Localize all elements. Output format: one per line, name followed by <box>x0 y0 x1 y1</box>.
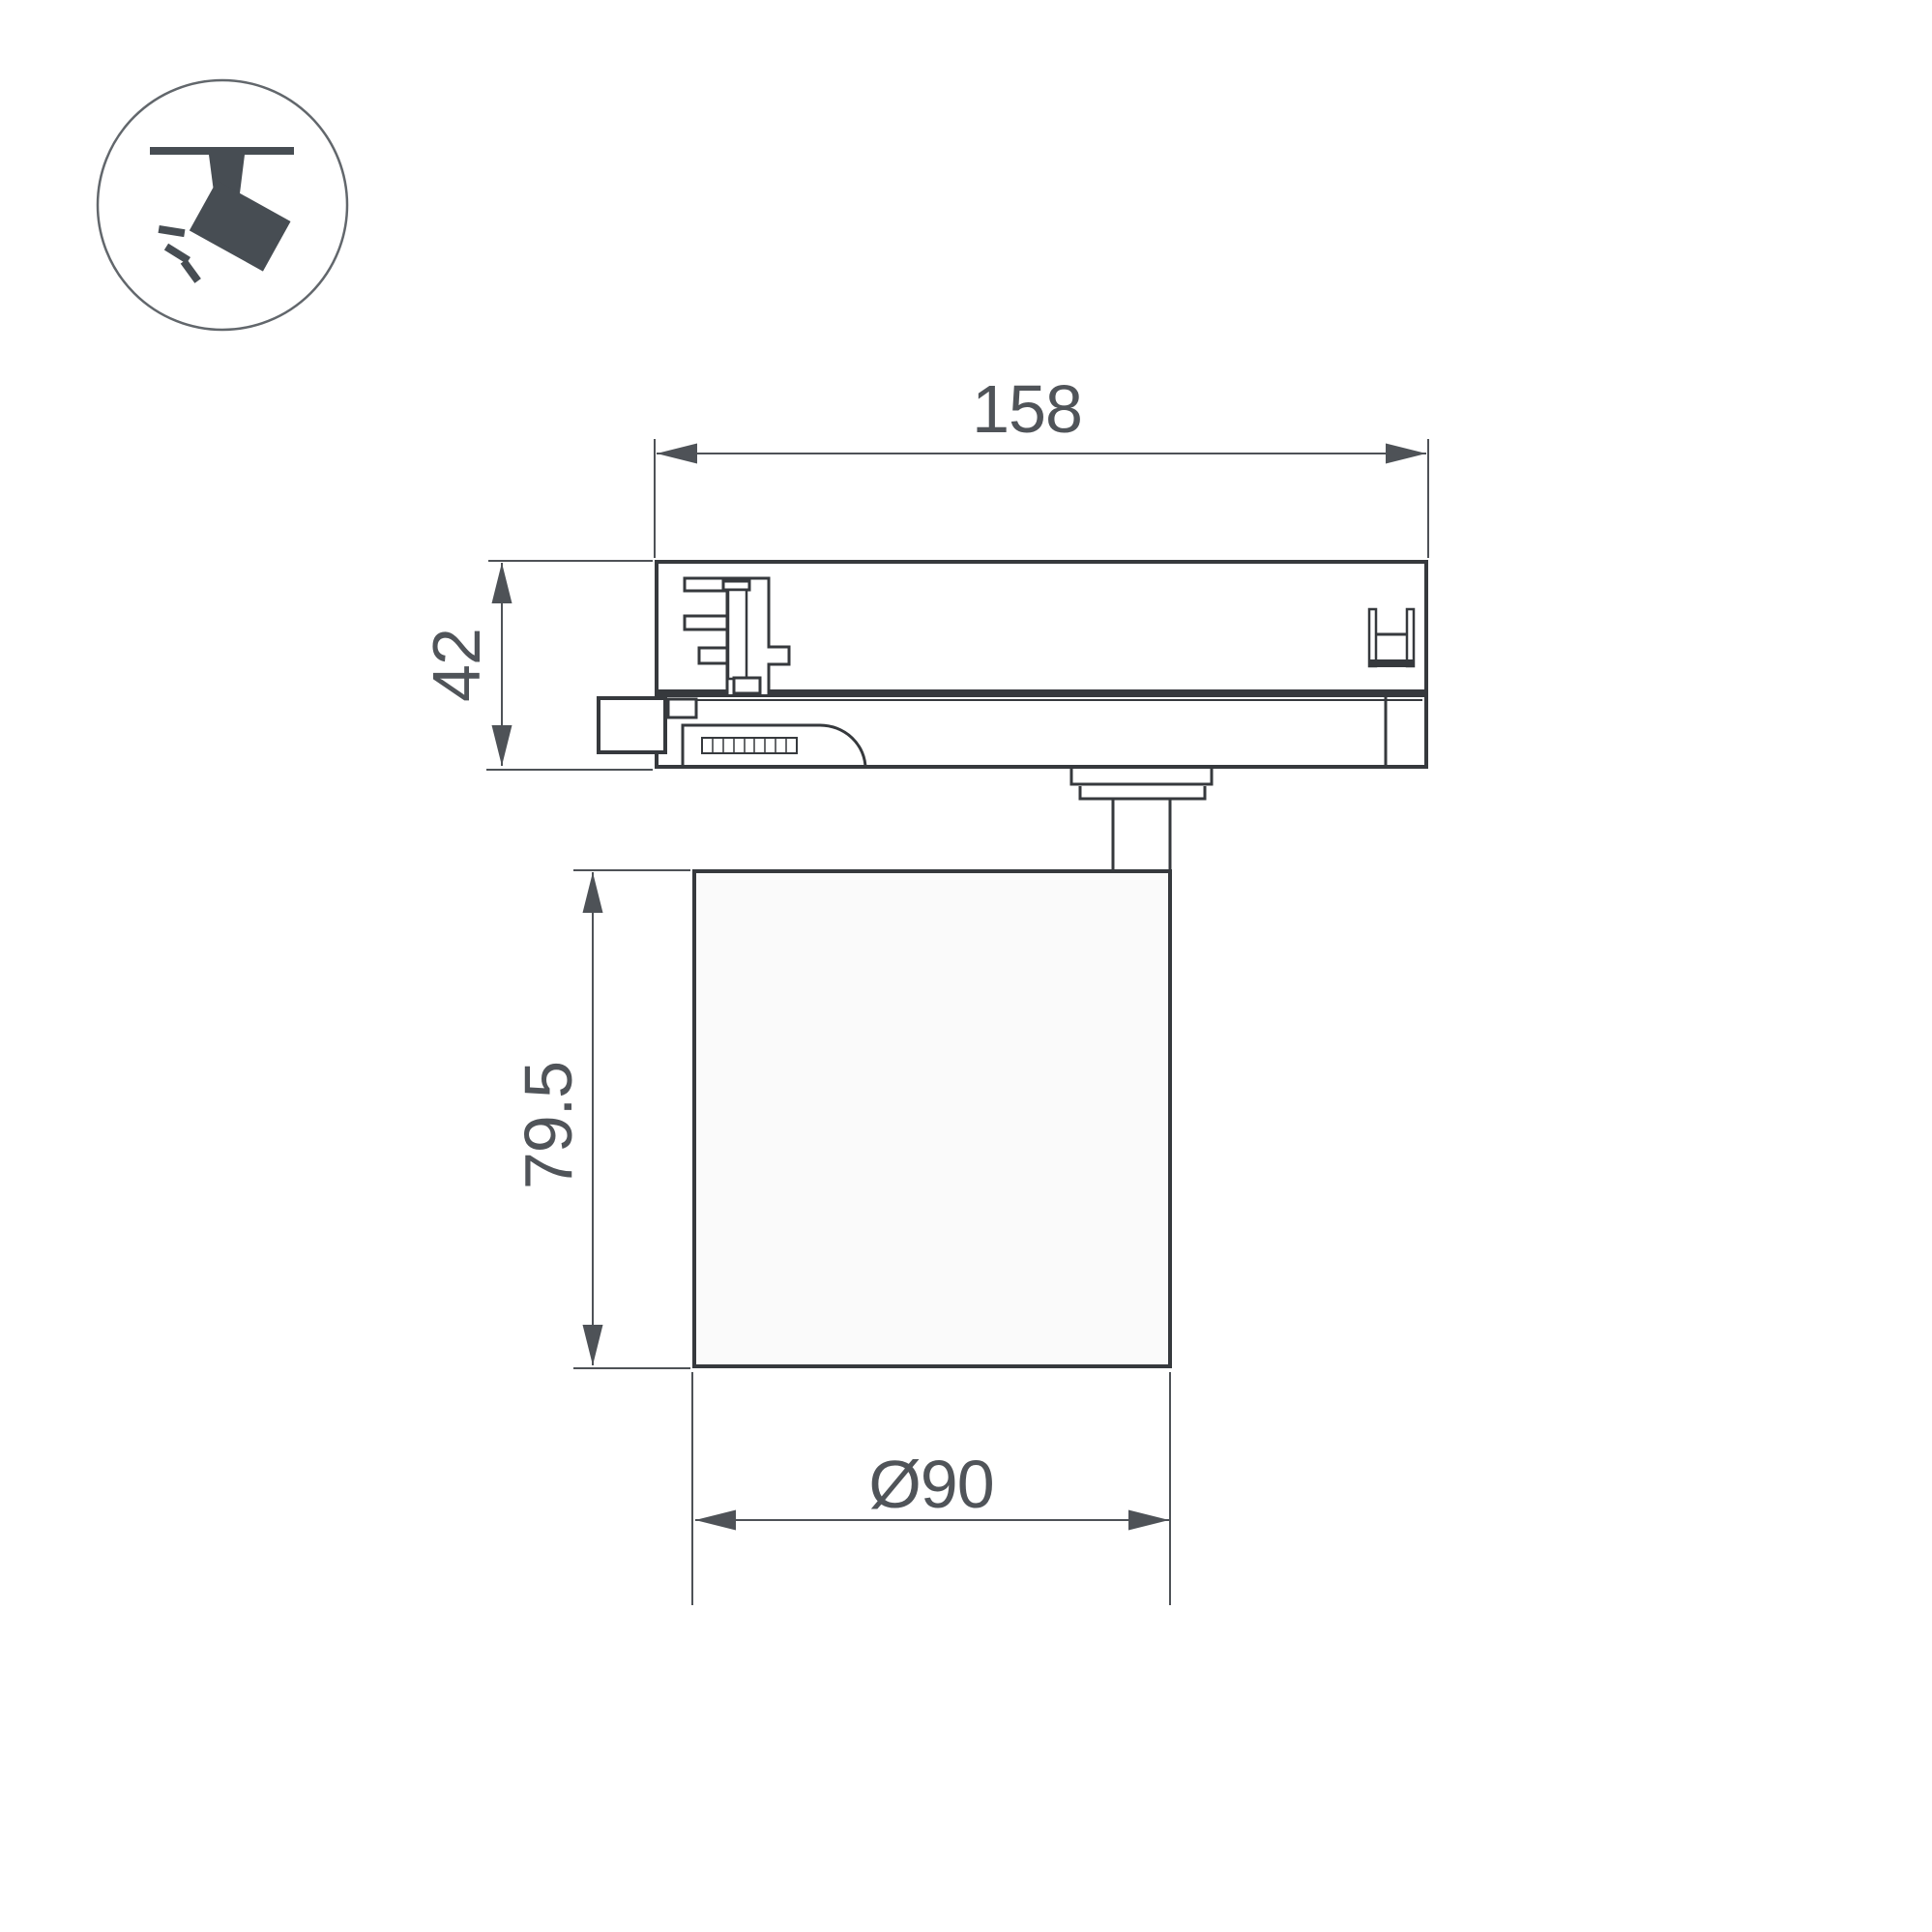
dim-79-5-label: 79.5 <box>511 1062 586 1189</box>
dim-42-label: 42 <box>419 629 494 702</box>
dim-42-arrow-up <box>492 563 512 603</box>
dim-42-arrow-down <box>492 725 512 766</box>
end-clip-base <box>1370 659 1413 667</box>
contact-pin <box>699 648 727 663</box>
dim-158: 158 <box>655 371 1428 558</box>
adapter-lower-plate <box>657 695 1426 767</box>
adapter-main-box <box>657 562 1426 691</box>
lock-lever <box>599 698 665 752</box>
dim-79-5-arrow-up <box>583 872 603 913</box>
terminal-ribs <box>702 738 797 753</box>
technical-drawing: 158 42 79.5 Ø90 <box>0 0 1932 1932</box>
ceiling-rail-icon <box>150 147 294 155</box>
contact-screw-stem <box>728 590 746 679</box>
dim-158-arrow-left <box>657 444 697 464</box>
dim-79-5-arrow-down <box>583 1325 603 1365</box>
contact-screw-cap <box>723 581 749 590</box>
product-type-icon <box>98 80 347 330</box>
lock-lever-step <box>668 699 696 717</box>
end-clip-bar <box>1369 609 1376 666</box>
dim-90-label: Ø90 <box>868 1447 993 1522</box>
technical-drawing-page: 158 42 79.5 Ø90 <box>0 0 1932 1932</box>
track-adapter <box>599 562 1426 869</box>
mounting-knuckle <box>1071 769 1212 869</box>
terminal-ribs-box <box>702 738 797 753</box>
lamp-body <box>694 871 1170 1366</box>
dim-158-label: 158 <box>972 371 1082 447</box>
dim-90: Ø90 <box>692 1372 1170 1605</box>
dim-90-arrow-right <box>1128 1510 1169 1531</box>
dim-158-arrow-right <box>1386 444 1426 464</box>
dim-79-5: 79.5 <box>511 870 690 1368</box>
end-clip-bar <box>1407 609 1414 666</box>
contact-screw-foot <box>734 678 760 693</box>
dim-90-arrow-left <box>695 1510 736 1531</box>
contact-pin <box>685 616 727 629</box>
contact-pin <box>685 578 727 591</box>
